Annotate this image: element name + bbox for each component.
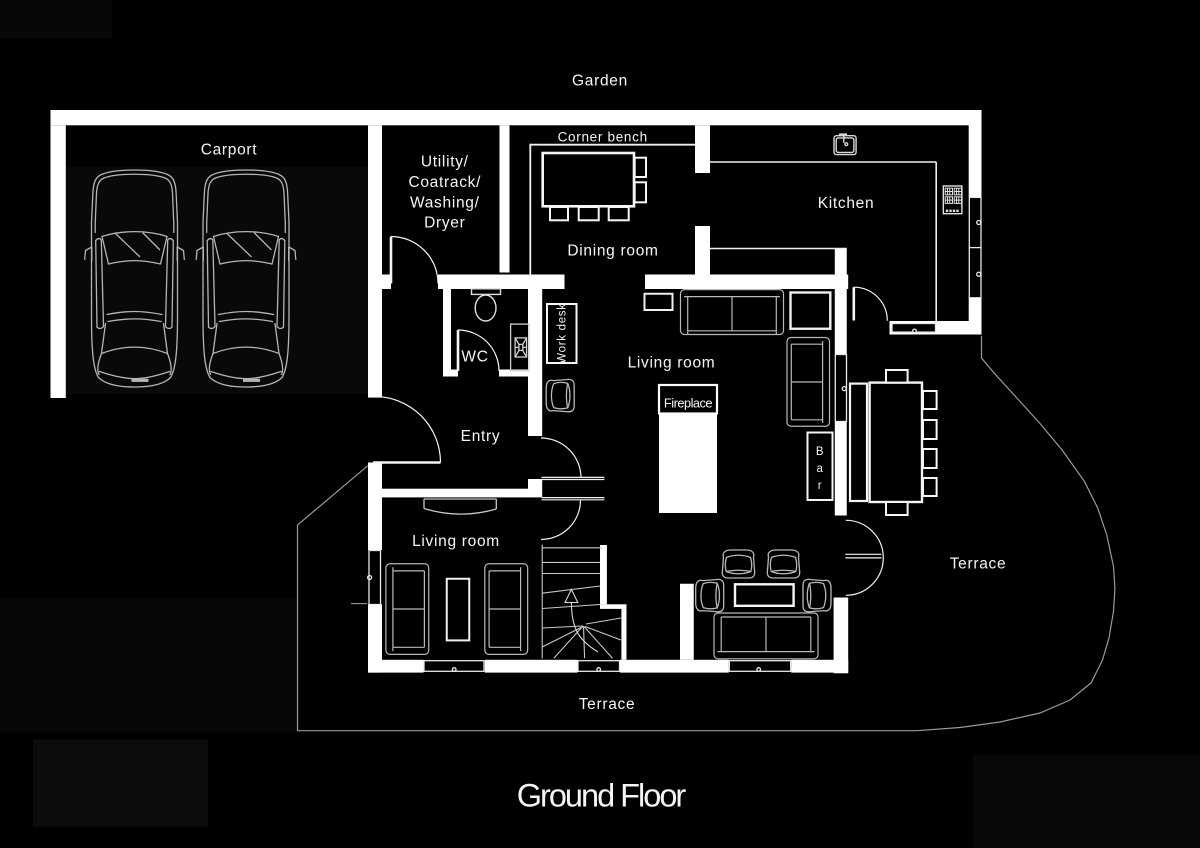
svg-text:Living room: Living room — [412, 533, 500, 550]
svg-text:B: B — [816, 446, 824, 458]
svg-text:Entry: Entry — [461, 428, 501, 445]
svg-text:Carport: Carport — [201, 142, 258, 159]
svg-text:Garden: Garden — [572, 73, 628, 90]
svg-text:WC: WC — [461, 349, 488, 366]
svg-text:Kitchen: Kitchen — [818, 195, 875, 212]
svg-text:Dryer: Dryer — [424, 215, 465, 232]
svg-text:Fireplace: Fireplace — [664, 396, 713, 411]
svg-text:Utility/: Utility/ — [421, 154, 469, 171]
svg-text:Living room: Living room — [628, 354, 716, 371]
svg-text:Terrace: Terrace — [950, 556, 1007, 573]
svg-text:Coatrack/: Coatrack/ — [408, 174, 481, 191]
svg-text:Washing/: Washing/ — [410, 194, 480, 211]
svg-text:Corner bench: Corner bench — [558, 129, 648, 144]
svg-text:Dining room: Dining room — [567, 242, 658, 259]
svg-text:r: r — [818, 480, 823, 492]
svg-text:Terrace: Terrace — [579, 696, 636, 713]
svg-text:a: a — [816, 463, 823, 475]
svg-text:Ground Floor: Ground Floor — [517, 778, 687, 814]
svg-text:Work desk: Work desk — [557, 303, 569, 363]
